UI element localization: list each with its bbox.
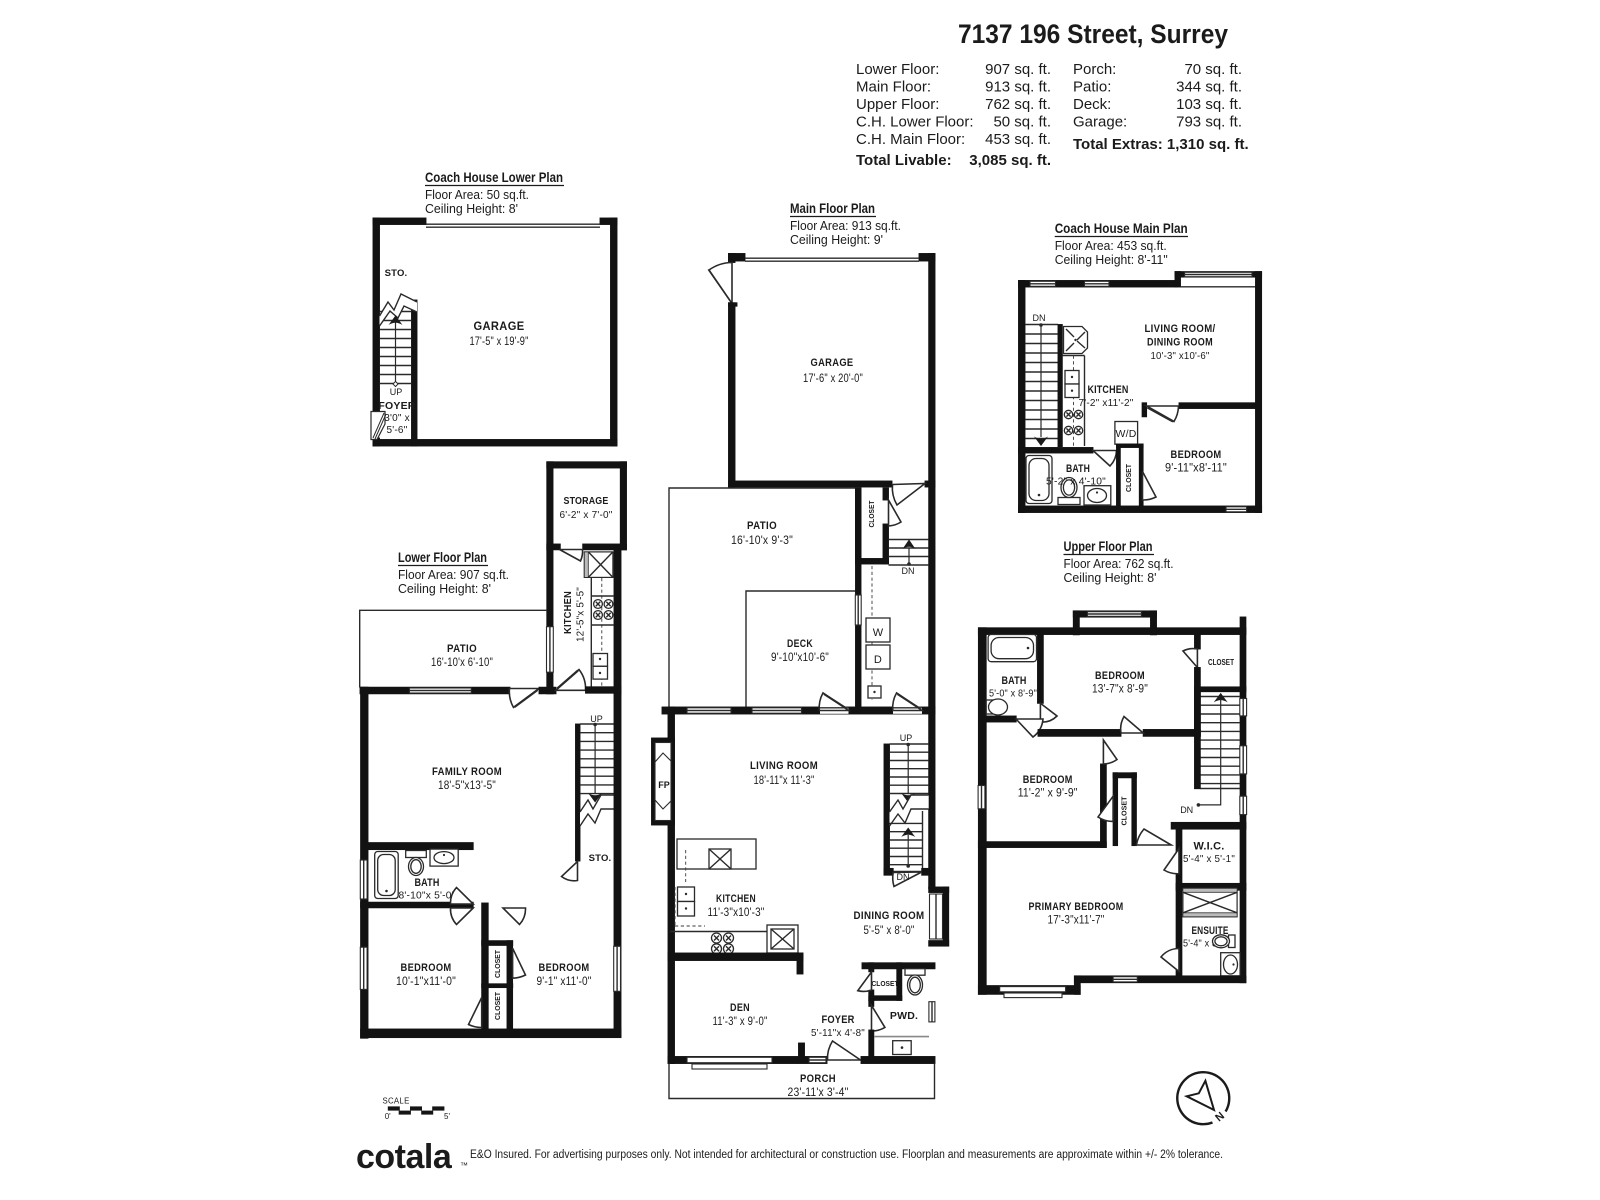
svg-text:Upper Floor:: Upper Floor: [856, 96, 939, 113]
svg-text:BEDROOM: BEDROOM [401, 962, 452, 974]
svg-text:Coach House Main Plan: Coach House Main Plan [1055, 221, 1188, 236]
svg-text:STO.: STO. [589, 853, 612, 864]
svg-text:11'-3"x10'-3": 11'-3"x10'-3" [708, 907, 765, 919]
svg-text:BATH: BATH [1002, 675, 1027, 687]
svg-text:BEDROOM: BEDROOM [1023, 774, 1073, 786]
svg-text:DN: DN [897, 872, 910, 882]
svg-text:50 sq. ft.: 50 sq. ft. [993, 114, 1051, 131]
svg-text:FP: FP [658, 780, 670, 790]
svg-text:Ceiling Height: 8': Ceiling Height: 8' [425, 202, 518, 216]
svg-text:18'-5"x13'-5": 18'-5"x13'-5" [438, 780, 496, 792]
svg-text:KITCHEN: KITCHEN [716, 893, 756, 905]
svg-text:SCALE: SCALE [383, 1097, 410, 1106]
svg-text:8'-10"x 5'-0": 8'-10"x 5'-0" [399, 890, 456, 902]
svg-text:CLOSET: CLOSET [493, 992, 502, 1020]
svg-text:PRIMARY BEDROOM: PRIMARY BEDROOM [1029, 901, 1124, 913]
svg-text:BEDROOM: BEDROOM [539, 962, 590, 974]
svg-text:™: ™ [460, 1161, 468, 1170]
svg-text:PATIO: PATIO [747, 520, 777, 532]
svg-text:Deck:: Deck: [1073, 96, 1111, 113]
svg-text:Ceiling Height: 9': Ceiling Height: 9' [790, 233, 883, 247]
svg-text:3,085 sq. ft.: 3,085 sq. ft. [969, 152, 1051, 169]
svg-text:9'-10"x10'-6": 9'-10"x10'-6" [771, 652, 829, 664]
svg-text:GARAGE: GARAGE [474, 319, 525, 333]
svg-text:16'-10'x 6'-10": 16'-10'x 6'-10" [431, 657, 493, 669]
svg-text:KITCHEN: KITCHEN [1088, 384, 1129, 396]
svg-text:E&O Insured. For advertising p: E&O Insured. For advertising purposes on… [470, 1149, 1223, 1161]
svg-text:344 sq. ft.: 344 sq. ft. [1176, 79, 1242, 96]
svg-text:Coach House Lower Plan: Coach House Lower Plan [425, 170, 563, 185]
svg-text:Floor Area: 907 sq.ft.: Floor Area: 907 sq.ft. [398, 568, 509, 582]
svg-text:DN: DN [1033, 313, 1046, 323]
svg-text:D: D [874, 654, 882, 666]
svg-text:BEDROOM: BEDROOM [1171, 449, 1222, 461]
svg-text:16'-10'x 9'-3": 16'-10'x 9'-3" [731, 535, 793, 547]
svg-text:10'-1"x11'-0": 10'-1"x11'-0" [396, 976, 456, 988]
svg-text:0': 0' [385, 1112, 391, 1121]
svg-text:STORAGE: STORAGE [564, 495, 609, 507]
svg-text:C.H. Main Floor:: C.H. Main Floor: [856, 131, 965, 148]
svg-text:UP: UP [900, 733, 913, 743]
svg-text:Main Floor Plan: Main Floor Plan [790, 201, 875, 216]
svg-text:cotala: cotala [356, 1138, 453, 1176]
svg-text:GARAGE: GARAGE [811, 357, 854, 369]
svg-text:13'-7"x 8'-9": 13'-7"x 8'-9" [1092, 684, 1148, 696]
svg-text:CLOSET: CLOSET [1208, 658, 1234, 667]
svg-text:Garage:: Garage: [1073, 114, 1127, 131]
svg-text:CLOSET: CLOSET [493, 950, 502, 978]
svg-text:3'0" x: 3'0" x [384, 413, 410, 424]
svg-text:STO.: STO. [385, 268, 408, 279]
svg-text:5': 5' [444, 1112, 450, 1121]
svg-text:17'-6" x 20'-0": 17'-6" x 20'-0" [803, 373, 863, 385]
svg-text:BATH: BATH [415, 877, 440, 889]
svg-text:23'-11'x 3'-4": 23'-11'x 3'-4" [788, 1087, 849, 1099]
svg-text:BEDROOM: BEDROOM [1095, 670, 1145, 682]
svg-text:6'-2" x 7'-0": 6'-2" x 7'-0" [560, 510, 613, 521]
svg-text:Floor Area: 50 sq.ft.: Floor Area: 50 sq.ft. [425, 188, 529, 202]
svg-text:CLOSET: CLOSET [872, 979, 899, 988]
svg-text:5'-6": 5'-6" [387, 425, 408, 436]
svg-text:W: W [873, 627, 884, 639]
svg-text:5'-4" x 5'-1": 5'-4" x 5'-1" [1183, 853, 1235, 865]
svg-text:9'-1" x11'-0": 9'-1" x11'-0" [537, 976, 592, 988]
svg-text:Lower Floor:: Lower Floor: [856, 61, 939, 78]
svg-text:Ceiling Height: 8': Ceiling Height: 8' [398, 582, 491, 596]
svg-text:DINING ROOM: DINING ROOM [1147, 337, 1213, 349]
svg-text:FOYER: FOYER [822, 1014, 855, 1026]
svg-text:Floor Area: 453 sq.ft.: Floor Area: 453 sq.ft. [1055, 239, 1167, 253]
svg-text:913 sq. ft.: 913 sq. ft. [985, 79, 1051, 96]
svg-text:CLOSET: CLOSET [869, 500, 876, 528]
svg-text:103 sq. ft.: 103 sq. ft. [1176, 96, 1242, 113]
svg-text:12'-5"x 5'-5": 12'-5"x 5'-5" [576, 587, 587, 642]
svg-text:DECK: DECK [787, 638, 813, 650]
svg-text:UP: UP [590, 714, 603, 724]
svg-text:5'-5" x 8'-0": 5'-5" x 8'-0" [864, 925, 915, 937]
svg-text:7'-2" x11'-2": 7'-2" x11'-2" [1079, 397, 1134, 409]
svg-text:7137 196 Street, Surrey: 7137 196 Street, Surrey [958, 19, 1228, 49]
svg-text:Lower Floor Plan: Lower Floor Plan [398, 550, 487, 565]
svg-text:453 sq. ft.: 453 sq. ft. [985, 131, 1051, 148]
svg-text:Patio:: Patio: [1073, 79, 1111, 96]
svg-text:Ceiling Height: 8'-11": Ceiling Height: 8'-11" [1055, 253, 1168, 267]
svg-text:762 sq. ft.: 762 sq. ft. [985, 96, 1051, 113]
svg-text:18'-11"x 11'-3": 18'-11"x 11'-3" [754, 775, 815, 787]
svg-text:17'-3"x11'-7": 17'-3"x11'-7" [1048, 915, 1105, 927]
svg-text:11'-3" x 9'-0": 11'-3" x 9'-0" [713, 1016, 768, 1028]
svg-text:Ceiling Height: 8': Ceiling Height: 8' [1064, 571, 1157, 585]
svg-text:9'-11"x8'-11": 9'-11"x8'-11" [1165, 463, 1227, 475]
svg-text:KITCHEN: KITCHEN [563, 591, 574, 634]
svg-text:CLOSET: CLOSET [1124, 464, 1133, 492]
svg-text:5'-0" x 8'-9": 5'-0" x 8'-9" [989, 688, 1037, 700]
svg-text:Porch:: Porch: [1073, 61, 1116, 78]
svg-text:793 sq. ft.: 793 sq. ft. [1176, 114, 1242, 131]
svg-text:PORCH: PORCH [800, 1073, 836, 1085]
svg-text:C.H. Lower Floor:: C.H. Lower Floor: [856, 114, 974, 131]
svg-text:DINING ROOM: DINING ROOM [854, 910, 925, 922]
svg-text:CLOSET: CLOSET [1120, 796, 1129, 825]
svg-text:Upper Floor Plan: Upper Floor Plan [1064, 539, 1153, 554]
svg-text:Floor Area: 762 sq.ft.: Floor Area: 762 sq.ft. [1064, 557, 1174, 571]
svg-text:DN: DN [902, 566, 915, 576]
svg-text:FOYER: FOYER [378, 400, 415, 412]
svg-text:5'-2" x 4'-10": 5'-2" x 4'-10" [1046, 476, 1106, 488]
svg-text:Main Floor:: Main Floor: [856, 79, 931, 96]
svg-text:Floor Area: 913 sq.ft.: Floor Area: 913 sq.ft. [790, 219, 901, 233]
svg-text:Total Livable:: Total Livable: [856, 152, 952, 169]
svg-text:LIVING ROOM/: LIVING ROOM/ [1145, 323, 1216, 335]
svg-text:PWD.: PWD. [890, 1010, 918, 1022]
svg-text:11'-2" x 9'-9": 11'-2" x 9'-9" [1018, 788, 1078, 800]
svg-text:PATIO: PATIO [447, 643, 477, 655]
svg-text:5'-11"x 4'-8": 5'-11"x 4'-8" [811, 1027, 865, 1039]
svg-text:10'-3" x10'-6": 10'-3" x10'-6" [1151, 350, 1210, 362]
svg-text:LIVING ROOM: LIVING ROOM [750, 760, 818, 772]
svg-text:BATH: BATH [1066, 463, 1090, 475]
svg-text:DEN: DEN [730, 1002, 750, 1014]
svg-text:Total Extras: 1,310 sq. ft.: Total Extras: 1,310 sq. ft. [1073, 136, 1249, 153]
svg-text:UP: UP [390, 387, 403, 397]
svg-text:907 sq. ft.: 907 sq. ft. [985, 61, 1051, 78]
svg-text:FAMILY ROOM: FAMILY ROOM [432, 766, 502, 778]
svg-text:17'-5" x 19'-9": 17'-5" x 19'-9" [470, 336, 529, 348]
svg-text:W.I.C.: W.I.C. [1194, 841, 1225, 853]
svg-text:DN: DN [1180, 805, 1193, 815]
svg-text:W/D: W/D [1115, 428, 1136, 440]
svg-text:70 sq. ft.: 70 sq. ft. [1184, 61, 1242, 78]
